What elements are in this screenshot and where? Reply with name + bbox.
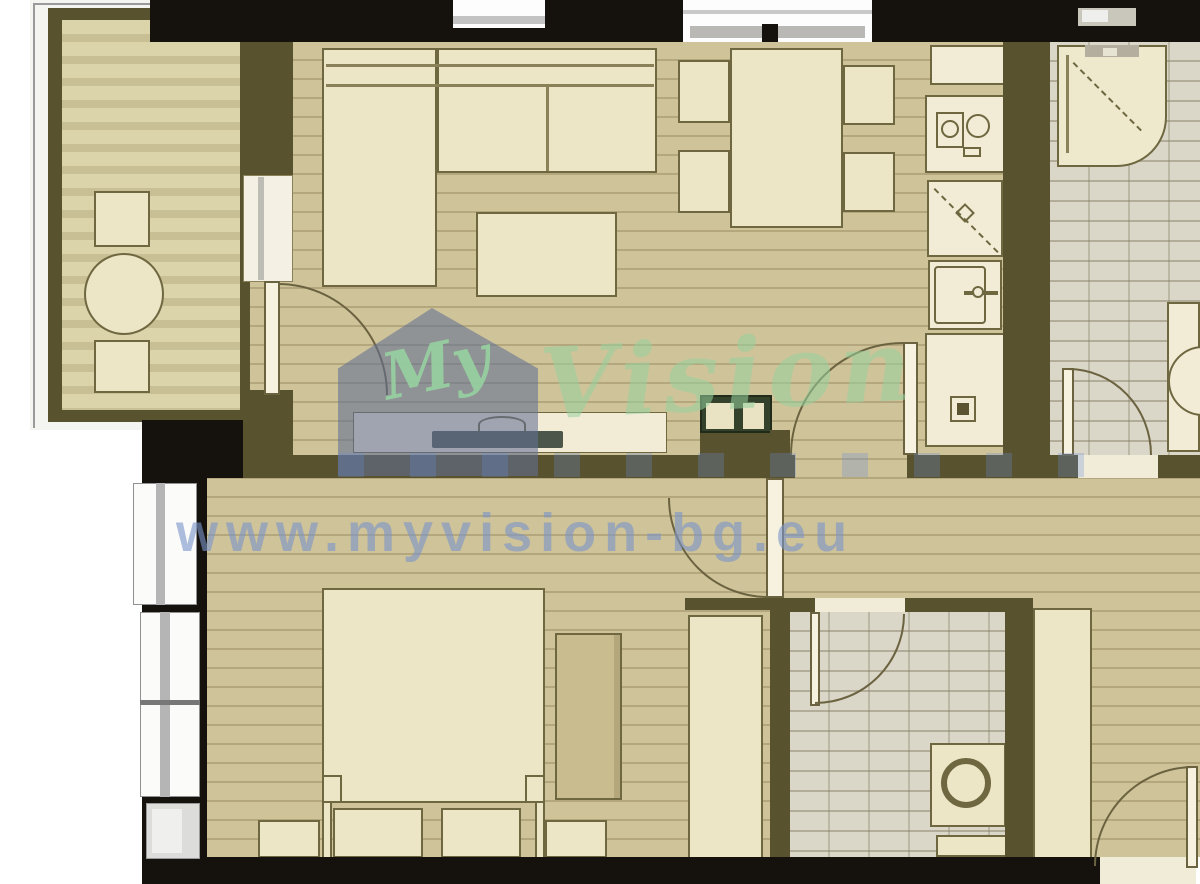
console-cabinet-pane-1 xyxy=(706,403,734,429)
bed xyxy=(322,588,545,803)
sofa-back-line-1 xyxy=(326,64,654,67)
sofa-seat-divider xyxy=(546,86,549,171)
shower-mixer-knob xyxy=(1103,48,1117,56)
bed-rail-right xyxy=(535,801,545,859)
wardrobe-right-room xyxy=(1033,608,1092,860)
wall-main-east xyxy=(1158,455,1200,478)
hall-door-leaf xyxy=(903,342,918,455)
balcony-chair-top xyxy=(94,191,150,247)
coffee-table xyxy=(476,212,617,297)
bed-corner-left xyxy=(322,775,342,803)
stove-burner-2 xyxy=(966,114,990,138)
nightstand-right xyxy=(545,820,607,858)
pillow-left xyxy=(333,808,423,858)
sofa-back-line-2 xyxy=(326,84,654,87)
balcony-deck xyxy=(62,20,240,410)
wall-hall-stub xyxy=(770,430,790,455)
laundry-shelf xyxy=(936,835,1008,857)
left-window-2-divider xyxy=(140,700,200,705)
tv-screen xyxy=(432,431,563,448)
wall-bath2-left xyxy=(790,598,815,612)
bathroom-top-threshold xyxy=(1078,455,1158,478)
bed-corner-right xyxy=(525,775,545,803)
floor-drain-core xyxy=(957,403,969,415)
console-cabinet-base xyxy=(700,433,772,457)
balcony-door-glass xyxy=(258,177,264,280)
left-window-1 xyxy=(133,483,197,605)
dining-table xyxy=(730,48,843,228)
top-window-latch xyxy=(762,24,778,42)
kitchen-counter xyxy=(930,45,1010,85)
wardrobe-tan xyxy=(555,633,622,800)
washing-machine-drum xyxy=(941,758,991,808)
stove-knob xyxy=(963,147,981,157)
balcony-rail-line xyxy=(33,3,35,428)
dining-chair-2 xyxy=(678,150,730,213)
wall-main-center xyxy=(907,455,1078,478)
console-cabinet-pane-2 xyxy=(743,403,764,429)
wall-living-left-lower xyxy=(243,390,293,457)
kitchen-cabinet xyxy=(925,333,1005,447)
balcony-rail-line-top xyxy=(33,3,163,5)
wardrobe-white xyxy=(688,615,763,860)
dining-chair-4 xyxy=(843,152,895,212)
wall-living-left-upper xyxy=(243,42,293,175)
wall-bedroom-bath2 xyxy=(770,598,790,863)
wall-main-west xyxy=(207,455,795,478)
pillow-right xyxy=(441,808,521,858)
wall-bath2-room xyxy=(1005,598,1033,884)
balcony-door-frame xyxy=(243,175,293,282)
stove-burner-1 xyxy=(941,120,959,138)
exterior-corner-left xyxy=(207,420,243,478)
top-vent-detail-inner xyxy=(1082,10,1108,22)
wall-bedroom-stub xyxy=(685,598,775,610)
wall-kitchen-bathroom xyxy=(1003,42,1050,478)
exterior-wall-bottom xyxy=(207,857,1100,884)
corridor-door-leaf xyxy=(766,478,784,598)
wardrobe-tan-shade xyxy=(614,635,620,798)
nightstand-left xyxy=(258,820,320,858)
exterior-wall-top xyxy=(150,0,1200,42)
balcony-chair-bottom xyxy=(94,340,150,393)
top-window-small-frame xyxy=(453,16,545,24)
dining-chair-1 xyxy=(678,60,730,123)
floor-plan: My Vision www.myvision-bg.eu xyxy=(0,0,1200,884)
left-window-3-inner xyxy=(152,809,182,853)
dining-chair-3 xyxy=(843,65,895,125)
left-window-1-mullion xyxy=(156,483,165,605)
bed-rail-left xyxy=(322,801,332,859)
bathroom-bottom-threshold xyxy=(815,598,905,612)
top-window-large-rail xyxy=(683,10,872,14)
shower-edge-line xyxy=(1066,55,1069,153)
kitchen-faucet-dot xyxy=(972,286,984,298)
balcony-table xyxy=(84,253,164,335)
